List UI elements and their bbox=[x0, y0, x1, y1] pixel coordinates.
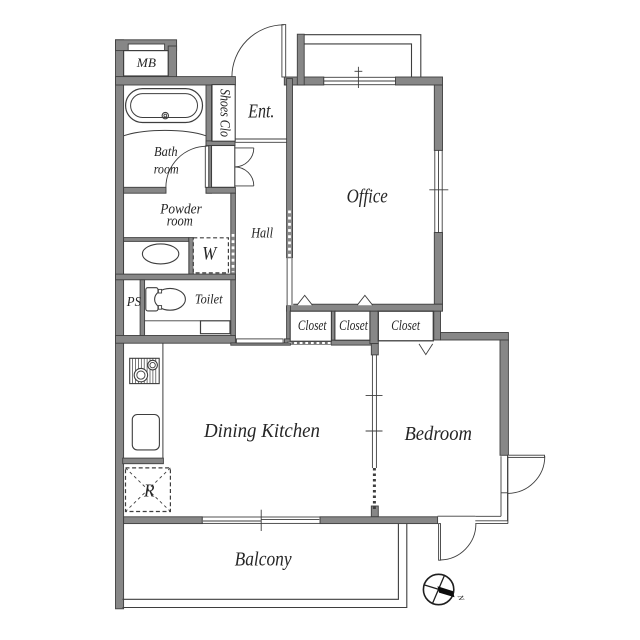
svg-text:Closet: Closet bbox=[391, 318, 420, 334]
svg-text:Toilet: Toilet bbox=[195, 291, 224, 306]
svg-text:Dining Kitchen: Dining Kitchen bbox=[203, 420, 320, 442]
svg-text:W: W bbox=[202, 243, 218, 264]
svg-text:Office: Office bbox=[347, 186, 388, 208]
svg-text:Closet: Closet bbox=[339, 318, 368, 334]
svg-text:R: R bbox=[143, 480, 154, 500]
svg-text:Hall: Hall bbox=[250, 226, 273, 242]
svg-text:Balcony: Balcony bbox=[235, 548, 292, 570]
svg-text:room: room bbox=[167, 213, 193, 229]
svg-text:MB: MB bbox=[136, 56, 156, 70]
svg-text:Shoes Clo: Shoes Clo bbox=[216, 89, 232, 137]
svg-text:Bath: Bath bbox=[154, 144, 178, 159]
svg-text:Bedroom: Bedroom bbox=[404, 423, 472, 445]
svg-text:PS: PS bbox=[126, 294, 141, 309]
svg-text:Ent.: Ent. bbox=[247, 102, 274, 123]
svg-text:room: room bbox=[154, 162, 179, 177]
svg-text:Closet: Closet bbox=[298, 318, 327, 334]
